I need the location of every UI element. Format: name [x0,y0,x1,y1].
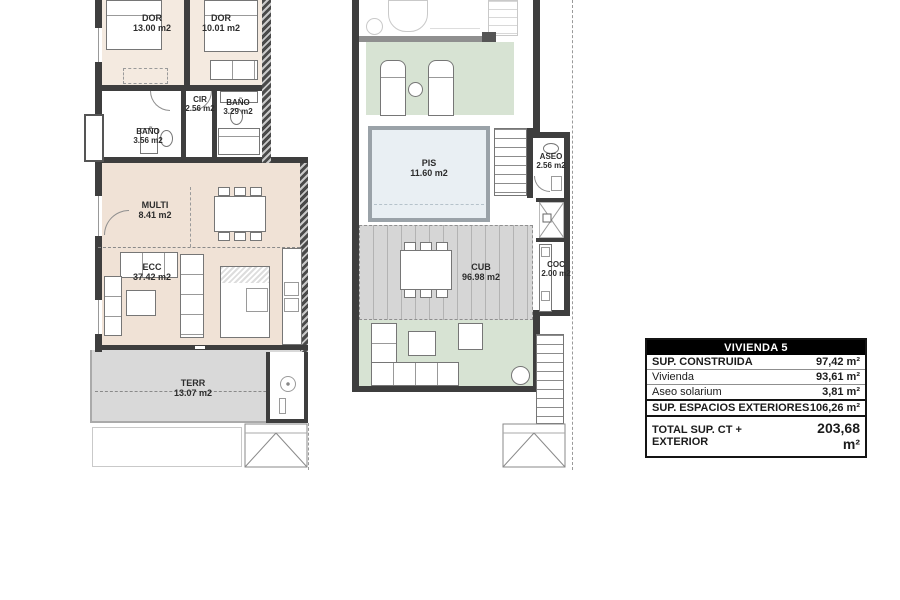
chair [436,289,448,298]
shower-symbol [539,202,564,238]
zone-divider [190,187,191,247]
room-area: 2.00 m2 [541,269,570,278]
room-name: CUB [471,262,491,272]
room-label-terr: TERR 13.07 m2 [174,378,212,399]
table-row: Aseo solarium 3,81 m² [647,384,865,399]
chair [218,232,230,241]
room-area: 2.56 m2 [536,161,565,170]
chair [250,187,262,196]
table-row: SUP. CONSTRUIDA 97,42 m² [647,355,865,369]
row-value: 97,42 m² [816,356,860,368]
chair [404,289,416,298]
wall [352,386,540,392]
row-value: 203,68 m² [798,420,860,452]
room-name: COC [547,260,565,269]
table-header: VIVIENDA 5 [647,340,865,355]
room-label-aseo: ASEO 2.56 m2 [536,152,565,170]
surface-summary-table: VIVIENDA 5 SUP. CONSTRUIDA 97,42 m² Vivi… [645,338,867,458]
chair [234,232,246,241]
parapet-post [482,32,496,42]
coffee-table [408,331,436,356]
side-table [126,290,156,316]
window [95,28,102,62]
wall [536,238,570,242]
pool-dashed-line [374,204,484,205]
sofa [180,254,204,338]
wall [184,0,190,90]
room-label-dor2: DOR 10.01 m2 [202,13,240,34]
room-area: 37.42 m2 [133,272,171,282]
room-area: 13.07 m2 [174,388,212,398]
room-area: 11.60 m2 [410,168,448,178]
room-label-cub: CUB 96.98 m2 [462,262,500,283]
island-hob [246,288,268,312]
room-name: BAÑO [226,98,250,107]
sun-lounger [428,60,454,116]
ghost-outline [92,427,242,467]
room-label-dor1: DOR 13.00 m2 [133,13,171,34]
room-name: DOR [211,13,231,23]
sofa-chaise [104,276,122,336]
room-area: 2.56 m2 [185,104,214,113]
ghost-shower [388,0,428,32]
boundary-dashed [308,423,309,470]
appliance [284,282,299,296]
dining-table [214,196,266,232]
island-sink-area [221,267,269,283]
room-name: TERR [181,378,206,388]
door-gap [195,346,205,349]
sink [541,247,550,257]
wardrobe [123,68,168,84]
row-value: 3,81 m² [822,386,860,398]
room-label-cir: CIR 2.56 m2 [185,95,214,113]
hob [541,291,550,301]
room-label-ecc: ECC 37.42 m2 [133,262,171,283]
row-label: SUP. CONSTRUIDA [652,356,753,368]
boundary-dashed [572,0,573,470]
zone-divider [98,247,300,248]
dining-table [400,250,452,290]
wardrobe [210,60,258,80]
door-arc [534,176,550,192]
sink [551,176,562,191]
row-label: TOTAL SUP. CT + EXTERIOR [652,424,798,448]
room-label-coc: COC 2.00 m2 [541,260,570,278]
floor-plan-sheet: DOR 13.00 m2 DOR 10.01 m2 CIR 2.56 m2 BA… [0,0,900,600]
table-row-total: TOTAL SUP. CT + EXTERIOR 203,68 m² [647,415,865,456]
room-name: PIS [422,158,437,168]
round-table [511,366,530,385]
chair [420,289,432,298]
bathtub [218,128,260,155]
window [95,196,102,236]
room-area: 8.41 m2 [138,210,171,220]
table-row: Vivienda 93,61 m² [647,369,865,384]
party-wall [262,0,271,163]
room-name: CIR [193,95,207,104]
terrace-edge [90,350,92,423]
armchair [458,323,483,350]
chair [218,187,230,196]
door-arc [150,91,170,111]
ghost-fixture [366,18,383,35]
room-area: 96.98 m2 [462,272,500,282]
wall [533,0,540,138]
room-name: BAÑO [136,127,160,136]
utility-shelf [279,398,286,414]
wall [102,157,308,163]
round-table [408,82,423,97]
stair [536,334,564,424]
room-label-pis: PIS 11.60 m2 [410,158,448,179]
room-area: 10.01 m2 [202,23,240,33]
room-label-multi: MULTI 8.41 m2 [138,200,171,221]
room-name: DOR [142,13,162,23]
room-name: MULTI [142,200,169,210]
stair-canopy-symbol [502,423,566,468]
sun-lounger [380,60,406,116]
appliance [284,298,299,312]
row-value: 93,61 m² [816,371,860,383]
washing-machine [280,376,296,392]
room-name: ASEO [540,152,563,161]
outdoor-sofa [371,362,459,386]
room-area: 13.00 m2 [133,23,171,33]
stair-canopy-symbol [244,423,308,468]
room-area: 3.56 m2 [133,136,162,145]
room-label-bano2: BAÑO 3.29 m2 [223,98,252,116]
room-label-bano1: BAÑO 3.56 m2 [133,127,162,145]
ghost-stair [488,0,518,36]
chair [234,187,246,196]
ghost-line [430,28,480,29]
pool-steps [494,128,527,196]
chair [250,232,262,241]
row-value: 106,26 m² [810,402,860,414]
room-name: ECC [142,262,161,272]
kitchen-counter [282,248,302,345]
shower [84,114,104,162]
room-area: 3.29 m2 [223,107,252,116]
row-label: Vivienda [652,371,694,383]
window [95,300,102,334]
row-label: SUP. ESPACIOS EXTERIORES [652,402,809,414]
wall [352,0,359,392]
wall [527,128,533,198]
row-label: Aseo solarium [652,386,722,398]
table-row: SUP. ESPACIOS EXTERIORES 106,26 m² [647,399,865,415]
